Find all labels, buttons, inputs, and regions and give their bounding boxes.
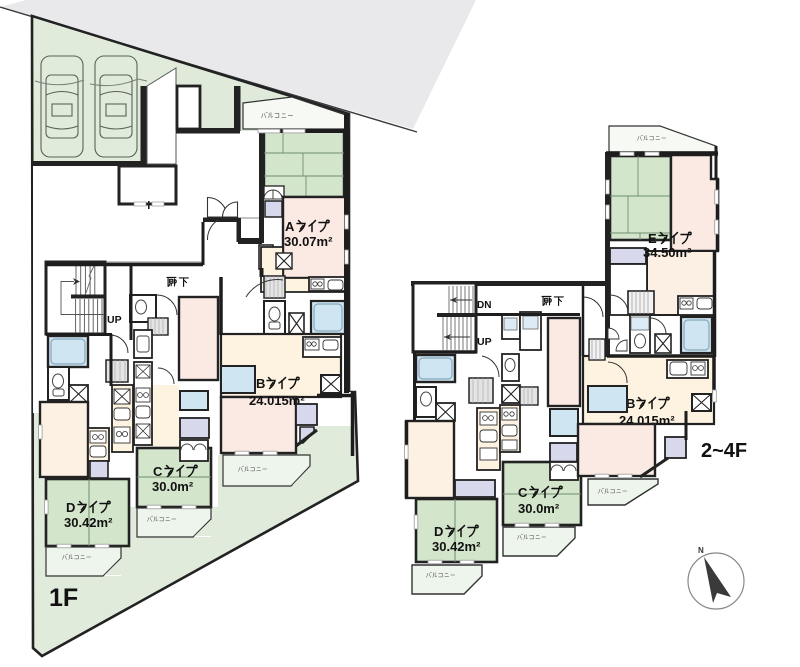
svg-text:N: N xyxy=(698,546,704,555)
svg-text:C: C xyxy=(153,464,163,479)
svg-text:2~4F: 2~4F xyxy=(701,440,747,462)
svg-text:34.50m²: 34.50m² xyxy=(643,245,692,260)
svg-text:UP: UP xyxy=(107,314,122,326)
svg-text:D: D xyxy=(66,500,75,515)
svg-text:30.0m²: 30.0m² xyxy=(518,501,560,516)
svg-text:A: A xyxy=(285,219,295,234)
svg-text:UP: UP xyxy=(477,336,492,348)
svg-text:D: D xyxy=(434,524,443,539)
svg-text:E: E xyxy=(648,231,657,246)
svg-text:30.0m²: 30.0m² xyxy=(152,479,194,494)
svg-text:DN: DN xyxy=(477,300,491,311)
svg-text:B: B xyxy=(256,376,265,391)
svg-text:C: C xyxy=(518,485,528,500)
svg-text:30.07m²: 30.07m² xyxy=(284,234,333,249)
svg-text:30.42m²: 30.42m² xyxy=(64,515,113,530)
svg-text:1F: 1F xyxy=(49,584,78,612)
svg-text:30.42m²: 30.42m² xyxy=(432,539,481,554)
